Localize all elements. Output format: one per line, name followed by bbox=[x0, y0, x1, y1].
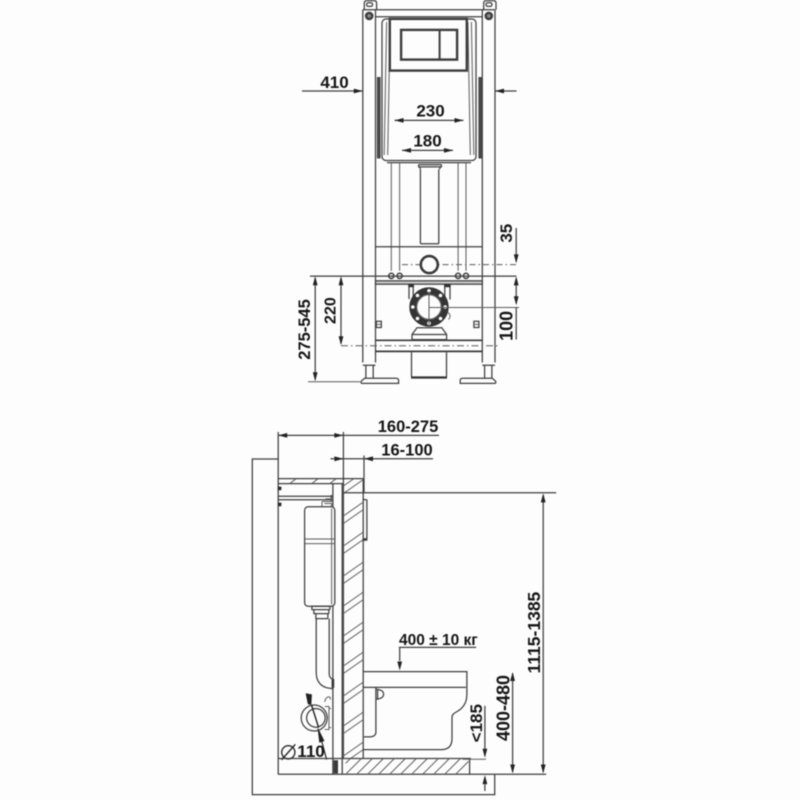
svg-text:400 ± 10 кг: 400 ± 10 кг bbox=[399, 632, 478, 649]
svg-text:275-545: 275-545 bbox=[296, 299, 314, 360]
svg-text:230: 230 bbox=[416, 102, 444, 121]
svg-text:160-275: 160-275 bbox=[378, 418, 439, 436]
svg-text:220: 220 bbox=[323, 297, 340, 324]
svg-text:35: 35 bbox=[497, 224, 516, 243]
svg-text:180: 180 bbox=[413, 132, 441, 151]
svg-text:400-480: 400-480 bbox=[494, 675, 514, 741]
svg-text:100: 100 bbox=[496, 311, 516, 341]
svg-text:410: 410 bbox=[320, 73, 348, 92]
svg-text:16-100: 16-100 bbox=[381, 442, 432, 460]
svg-text:<185: <185 bbox=[467, 704, 486, 742]
svg-text:1115-1385: 1115-1385 bbox=[524, 591, 544, 673]
